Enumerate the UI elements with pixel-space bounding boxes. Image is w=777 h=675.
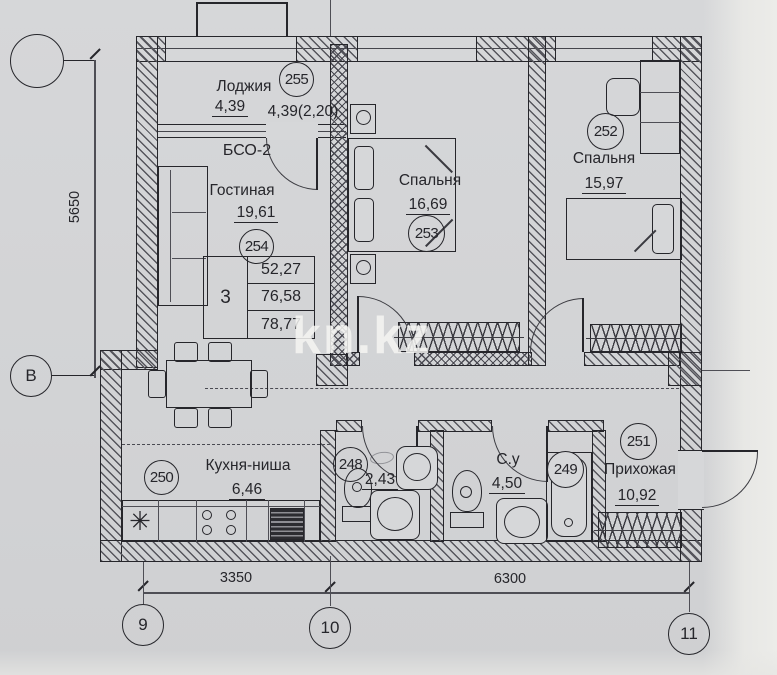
axis-leader-top	[64, 60, 94, 61]
pillow	[354, 146, 374, 190]
counter-divider	[304, 500, 305, 542]
sink-star-icon: ✳	[122, 504, 158, 538]
paper-edge-bottom	[0, 650, 777, 675]
bedroom-253-bottom-wall-left	[346, 352, 360, 366]
paper-edge-right	[703, 0, 777, 675]
counter-divider	[196, 500, 197, 542]
axis-leader-b	[52, 375, 94, 376]
loggia-area-full: 4,39(2,20)	[250, 103, 356, 121]
dim-tick	[89, 48, 100, 59]
wardrobe-hall	[598, 512, 682, 548]
chair	[208, 408, 232, 428]
desk-shelf-line-1	[640, 92, 680, 93]
bath-label: С.у	[486, 451, 530, 469]
sofa-cushion-line-1	[172, 212, 206, 213]
stove-burner	[202, 525, 212, 535]
desk-252	[640, 60, 680, 154]
bso-label: БСО-2	[210, 142, 284, 160]
corridor-axis-line	[205, 388, 679, 389]
bedroom-253-left-wall	[330, 44, 348, 366]
wc-area: 2,43	[356, 471, 404, 489]
bedroom-252-bottom-wall	[584, 352, 680, 366]
chair	[250, 370, 268, 398]
chair	[174, 408, 198, 428]
desk-chair	[606, 78, 640, 116]
left-wall-lower	[100, 350, 122, 562]
dim-6300: 6300	[474, 571, 546, 589]
area-summary-table: 3 52,27 76,58 78,77	[203, 256, 315, 339]
kitchen-label: Кухня-ниша	[194, 457, 302, 475]
room-badge-250: 250	[144, 460, 179, 495]
counter-divider	[268, 500, 269, 542]
hall-label: Прихожая	[594, 461, 686, 479]
axis-circle-9: 9	[122, 604, 164, 646]
fridge-block	[270, 508, 304, 540]
bath-area: 4,50	[482, 475, 532, 493]
toilet-detail	[460, 486, 472, 498]
chair	[208, 342, 232, 362]
kitchen-niche-boundary	[122, 444, 330, 445]
chair	[174, 342, 198, 362]
hall-area: 10,92	[610, 487, 664, 505]
bathtub-drain	[564, 518, 573, 527]
basin-bowl	[504, 506, 540, 538]
sofa-cushion-line-2	[172, 258, 206, 259]
bedroom-253-area: 16,69	[400, 196, 456, 214]
bedroom-253-door-leaf	[357, 296, 359, 352]
stove-burner	[202, 510, 212, 520]
room-badge-252: 252	[587, 113, 624, 150]
bedroom-252-area: 15,97	[576, 175, 632, 193]
living-label: Гостиная	[200, 182, 284, 200]
room-badge-251: 251	[620, 423, 657, 460]
loggia-door-leaf	[316, 138, 318, 190]
axis-circle-b: В	[10, 355, 52, 397]
loggia-label: Лоджия	[198, 78, 290, 96]
axis-circle-11: 11	[668, 613, 710, 655]
stove-burner	[226, 525, 236, 535]
lamp	[356, 110, 371, 125]
top-wall-pier-2	[296, 36, 358, 62]
entrance-door-leaf	[702, 450, 758, 452]
toilet-tank	[450, 512, 484, 528]
rooms-count: 3	[204, 257, 248, 338]
stove-burner	[226, 510, 236, 520]
room-badge-253: 253	[408, 215, 445, 252]
column-mid	[316, 354, 348, 386]
bedroom-253-bottom-wall-right	[414, 352, 532, 366]
bedroom-252-label: Спальня	[566, 150, 642, 168]
dim-line-bottom	[143, 592, 690, 594]
chair	[148, 370, 166, 398]
room-badge-249: 249	[547, 451, 584, 488]
axis-10-line-top	[330, 0, 331, 36]
wardrobe-253	[398, 322, 520, 352]
sofa-backrest-line	[170, 170, 171, 302]
pillow	[354, 198, 374, 242]
axis-mark-right	[702, 370, 750, 371]
dim-5650: 5650	[67, 179, 85, 235]
column-right	[668, 352, 702, 386]
kitchen-wc-wall	[320, 430, 336, 542]
bedroom-252-door-leaf	[582, 298, 584, 352]
total-area-with-loggia: 78,77	[248, 311, 314, 338]
dim-line-vertical	[94, 60, 96, 378]
axis-circle-empty	[10, 34, 64, 88]
axis-9-line	[143, 562, 144, 604]
living-area: 19,61	[228, 204, 284, 222]
dim-3350: 3350	[200, 570, 272, 588]
total-area: 76,58	[248, 284, 314, 311]
living-area-total: 52,27	[248, 257, 314, 284]
top-exterior-wall	[136, 36, 702, 62]
desk-shelf-line-2	[640, 122, 680, 123]
kitchen-area: 6,46	[220, 481, 274, 499]
axis-11-line	[689, 562, 690, 612]
left-wall-upper	[136, 36, 158, 368]
wc-top-wall	[336, 420, 362, 432]
bedroom-253-label: Спальня	[392, 172, 468, 190]
room-badge-255: 255	[279, 62, 314, 97]
basin-bowl	[377, 497, 413, 531]
axis-circle-10: 10	[309, 607, 351, 649]
wardrobe-252	[590, 324, 682, 352]
dining-table	[166, 360, 252, 408]
basin-bowl	[403, 453, 431, 481]
entrance-opening	[678, 450, 704, 510]
counter-divider	[158, 500, 159, 542]
lamp	[356, 260, 371, 275]
floor-plan: ✳ 5650 В 3350 6300 9 10 11 Лоджия 4,39 4…	[0, 0, 777, 675]
axis-10-line	[330, 556, 331, 606]
counter-divider	[246, 500, 247, 542]
